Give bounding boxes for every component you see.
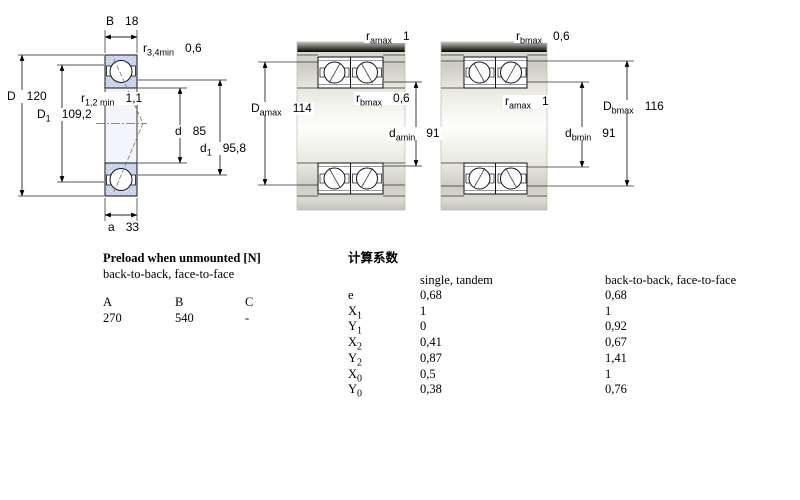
dim-label-D: D120 — [5, 90, 49, 103]
dim-label-d: d85 — [173, 125, 208, 138]
preload-col-C: C — [245, 295, 285, 311]
dim-D — [18, 55, 104, 196]
preload-value-row: 270540- — [103, 311, 285, 327]
dim-label-r34min: r3,4min0,6 — [141, 42, 204, 55]
bearing-datasheet-page: B18 r3,4min0,6 D120 D1109,2 r1,2 min1,1 … — [0, 0, 800, 500]
factors-col2-header: back-to-back, face-to-face — [605, 272, 736, 288]
dim-label-a: a33 — [106, 221, 141, 234]
dim-label-d1: d195,8 — [198, 142, 248, 155]
dim-label-r12min: r1,2 min1,1 — [79, 92, 144, 105]
factors-row-Y1: Y100,92 — [348, 319, 736, 335]
ball-top — [110, 61, 132, 83]
dim-label-dbmin: dbmin91 — [563, 127, 618, 140]
preload-title: Preload when unmounted [N] — [103, 250, 285, 266]
dim-a — [105, 198, 137, 221]
dim-label-ramax-mid: ramax1 — [364, 30, 412, 43]
dim-B — [105, 30, 137, 53]
bearing-pair-top — [318, 57, 383, 88]
preload-header-row: ABC — [103, 295, 285, 311]
dim-label-B: B18 — [104, 15, 140, 28]
factors-row-e: e0,680,68 — [348, 288, 736, 304]
factors-row-X0: X00,51 — [348, 367, 736, 383]
factors-row-X1: X111 — [348, 304, 736, 320]
dim-label-rbmax-mid: rbmax0,6 — [354, 92, 412, 105]
bearing-pair-top — [464, 57, 527, 88]
factors-header-row: single, tandemback-to-back, face-to-face — [348, 272, 736, 288]
preload-col-B: B — [175, 295, 245, 311]
factors-row-Y0: Y00,380,76 — [348, 382, 736, 398]
preload-value-A: 270 — [103, 311, 175, 327]
dim-label-rbmax-right: rbmax0,6 — [514, 30, 572, 43]
preload-subtitle: back-to-back, face-to-face — [103, 266, 285, 282]
bearing-pair-bottom — [464, 163, 527, 194]
dim-label-Dbmax: Dbmax116 — [601, 100, 666, 113]
preload-value-C: - — [245, 311, 285, 327]
calculation-factors-table: 计算系数 single, tandemback-to-back, face-to… — [348, 250, 736, 398]
bearing-pair-bottom — [318, 163, 383, 194]
factors-col1-header: single, tandem — [420, 272, 605, 288]
dim-label-D1: D1109,2 — [35, 108, 94, 121]
factors-title: 计算系数 — [348, 250, 736, 266]
preload-value-B: 540 — [175, 311, 245, 327]
dim-label-Damax: Damax114 — [249, 102, 314, 115]
preload-table: Preload when unmounted [N] back-to-back,… — [103, 250, 285, 326]
factors-row-X2: X20,410,67 — [348, 335, 736, 351]
dim-label-ramax-right: ramax1 — [503, 95, 551, 108]
preload-col-A: A — [103, 295, 175, 311]
bearing-section-bottom — [105, 163, 137, 196]
dim-label-damin: damin91 — [387, 127, 442, 140]
bearing-section-top — [105, 55, 137, 88]
ball-bottom — [110, 169, 132, 191]
paired-mounting-a-diagram — [258, 42, 422, 210]
factors-row-Y2: Y20,871,41 — [348, 351, 736, 367]
